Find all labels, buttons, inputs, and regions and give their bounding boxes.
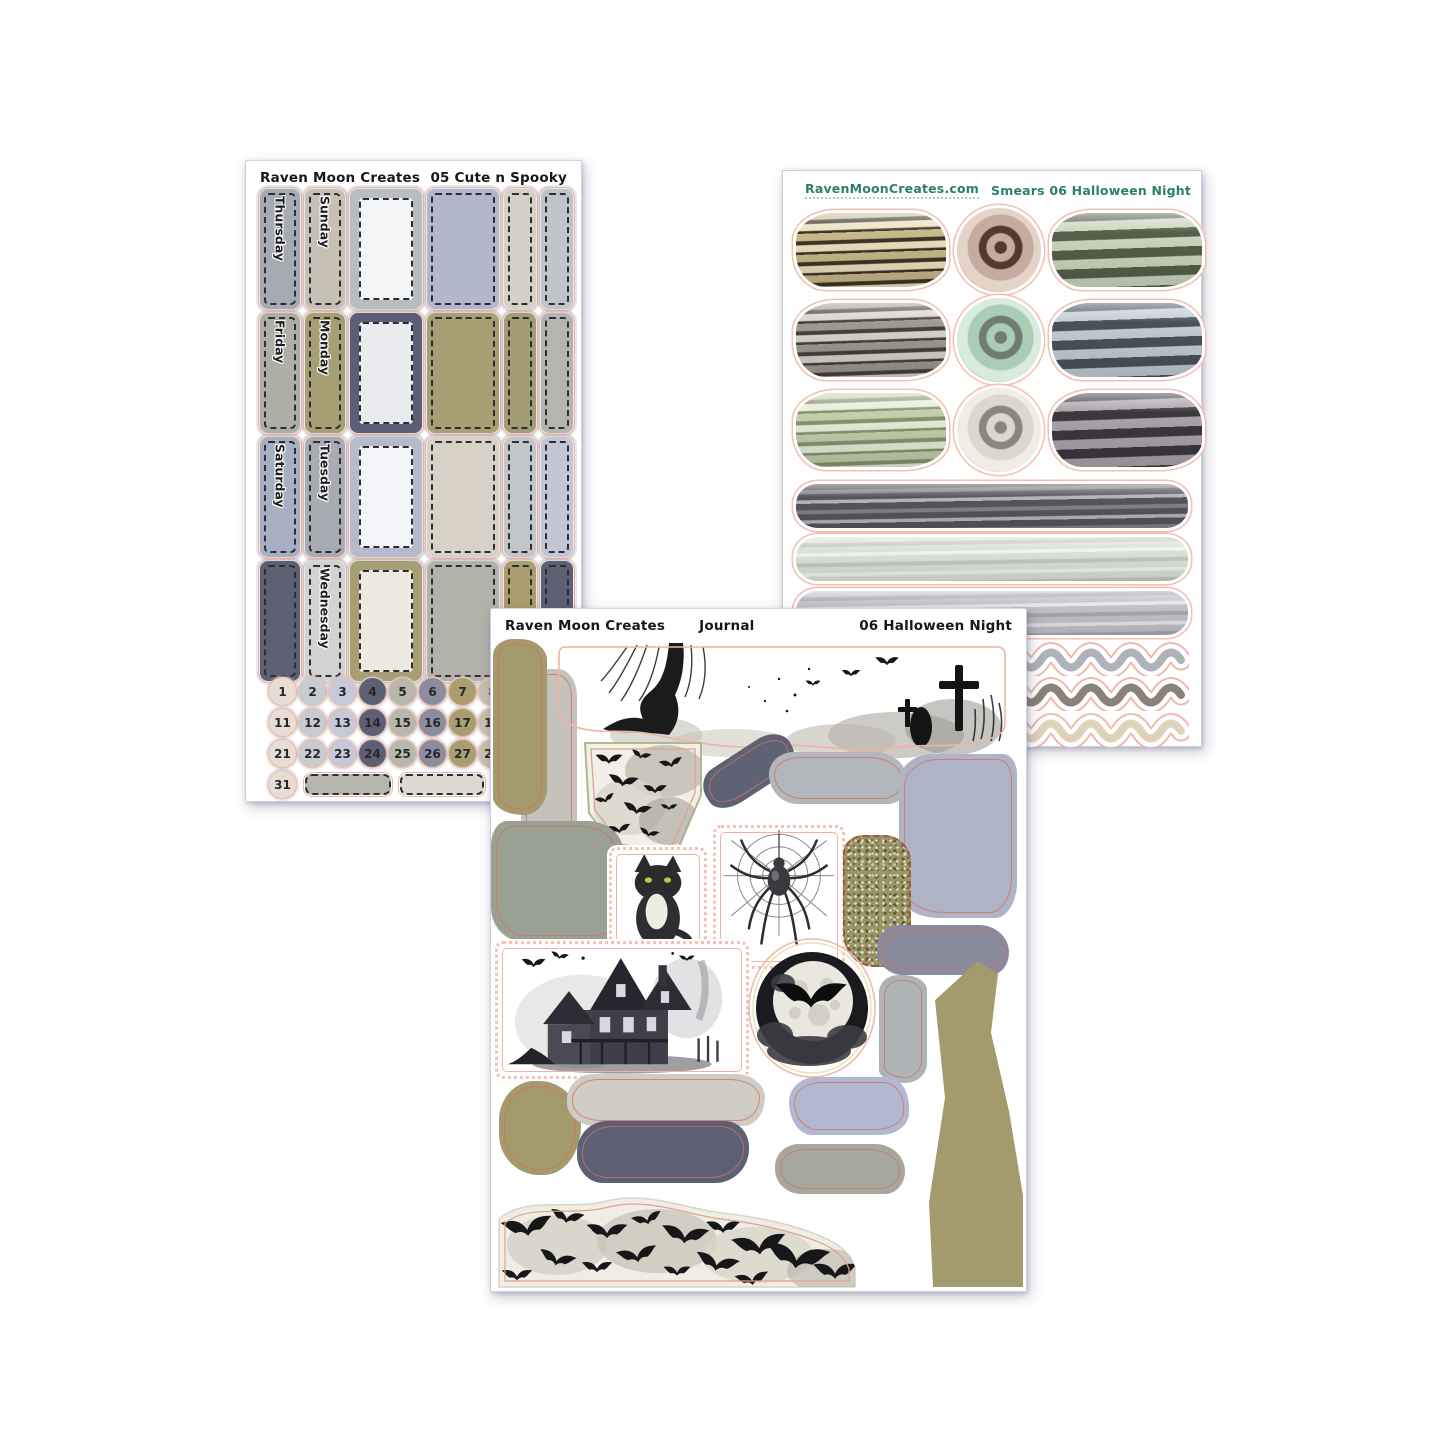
day-label: Sunday <box>318 196 333 248</box>
day-label: Wednesday <box>318 568 333 649</box>
day-box-thursday: Thursday <box>260 189 300 309</box>
narrow-box <box>504 437 536 557</box>
sheet-b-header: RavenMoonCreates.com Smears 06 Halloween… <box>797 180 1187 200</box>
day-label: Thursday <box>273 196 288 261</box>
graygreen-big-torn-shape <box>491 821 623 941</box>
date-circle: 13 <box>329 709 356 736</box>
black-cat-image <box>612 850 704 954</box>
day-label: Saturday <box>273 444 288 508</box>
smear-grid <box>795 209 1203 471</box>
frame-box-inner <box>359 570 413 672</box>
long-paint-smear <box>796 537 1188 581</box>
brand-name: Raven Moon Creates <box>260 170 420 186</box>
haunted-house-stamp-sticker <box>495 941 749 1079</box>
gray-vertical-smear-sticker <box>879 975 927 1083</box>
date-circle: 31 <box>269 771 296 798</box>
date-circle: 2 <box>299 678 326 705</box>
paint-smear-stack <box>1052 393 1202 467</box>
narrow-box <box>541 437 573 557</box>
olive-torn-strip-left <box>493 639 547 815</box>
date-circle: 6 <box>419 678 446 705</box>
olive-tall-torn-strip <box>923 961 1023 1287</box>
date-circle: 15 <box>389 709 416 736</box>
lavender-big-torn-shape <box>899 754 1017 918</box>
frame-box <box>350 189 422 309</box>
date-circle: 7 <box>449 678 476 705</box>
date-circle: 1 <box>269 678 296 705</box>
solid-box <box>427 313 499 433</box>
day-box-blank <box>260 561 300 681</box>
day-label: Tuesday <box>318 444 333 501</box>
sheet-label: Smears 06 Halloween Night <box>991 183 1191 198</box>
date-circle: 14 <box>359 709 386 736</box>
date-circle: 16 <box>419 709 446 736</box>
date-circle: 22 <box>299 740 326 767</box>
blank-date-bar <box>305 774 391 795</box>
day-box-wednesday: Wednesday <box>305 561 345 681</box>
day-box-tuesday: Tuesday <box>305 437 345 557</box>
date-circle: 11 <box>269 709 296 736</box>
day-box-saturday: Saturday <box>260 437 300 557</box>
narrow-box <box>504 313 536 433</box>
sheet-a-header: Raven Moon Creates 05 Cute n Spooky <box>260 170 567 186</box>
paint-swirl <box>957 298 1041 382</box>
frame-box-inner <box>359 198 413 300</box>
product-image: Raven Moon Creates 05 Cute n Spooky Thur… <box>0 0 1445 1445</box>
date-circle: 17 <box>449 709 476 736</box>
date-circle: 12 <box>299 709 326 736</box>
collection-name: Journal <box>699 618 754 634</box>
day-box-monday: Monday <box>305 313 345 433</box>
long-paint-smear <box>796 484 1188 528</box>
light-gray-long-smear <box>567 1074 765 1126</box>
paint-smear-stack <box>796 393 946 467</box>
narrow-box <box>541 313 573 433</box>
sheet-code: 05 Cute n Spooky <box>430 170 567 186</box>
site-link: RavenMoonCreates.com <box>805 181 979 199</box>
sheet-c-header: Raven Moon Creates Journal 06 Halloween … <box>505 618 1012 634</box>
solid-box <box>427 437 499 557</box>
day-box-sunday: Sunday <box>305 189 345 309</box>
dark-slate-smear-2-sticker <box>577 1121 749 1183</box>
paint-smear-stack <box>1052 303 1202 377</box>
date-circle: 3 <box>329 678 356 705</box>
frame-box-inner <box>359 322 413 424</box>
paint-smear-stack <box>796 303 946 377</box>
blank-date-bar <box>400 774 484 795</box>
frame-box-inner <box>359 446 413 548</box>
solid-box <box>427 561 499 681</box>
date-circle: 4 <box>359 678 386 705</box>
bat-swarm-banner-sticker <box>497 1175 899 1289</box>
day-label: Friday <box>273 320 288 363</box>
solid-box <box>427 189 499 309</box>
slate-smear-2-sticker <box>877 925 1009 975</box>
paint-swirl <box>957 388 1041 472</box>
lavender-smear-2-sticker <box>789 1077 909 1135</box>
day-box-friday: Friday <box>260 313 300 433</box>
date-circle: 27 <box>449 740 476 767</box>
full-moon-bat-sticker <box>747 937 877 1079</box>
paint-smear-stack <box>1052 213 1202 287</box>
frame-box <box>350 437 422 557</box>
narrow-box <box>504 189 536 309</box>
frame-box <box>350 313 422 433</box>
sheet-code: 06 Halloween Night <box>859 618 1012 634</box>
brand-name: Raven Moon Creates <box>505 618 665 634</box>
date-circle: 25 <box>389 740 416 767</box>
date-circle: 23 <box>329 740 356 767</box>
date-circle: 21 <box>269 740 296 767</box>
date-circle: 24 <box>359 740 386 767</box>
date-circle: 26 <box>419 740 446 767</box>
date-circle: 5 <box>389 678 416 705</box>
frame-box <box>350 561 422 681</box>
paint-smear-stack <box>796 213 946 287</box>
haunted-house-image <box>498 944 746 1076</box>
gray-smear-sticker <box>769 752 907 804</box>
sticker-sheet-journal: Raven Moon Creates Journal 06 Halloween … <box>490 608 1027 1292</box>
day-label: Monday <box>318 320 333 375</box>
moon-image <box>747 937 877 1079</box>
narrow-box <box>541 189 573 309</box>
paint-swirl <box>957 208 1041 292</box>
